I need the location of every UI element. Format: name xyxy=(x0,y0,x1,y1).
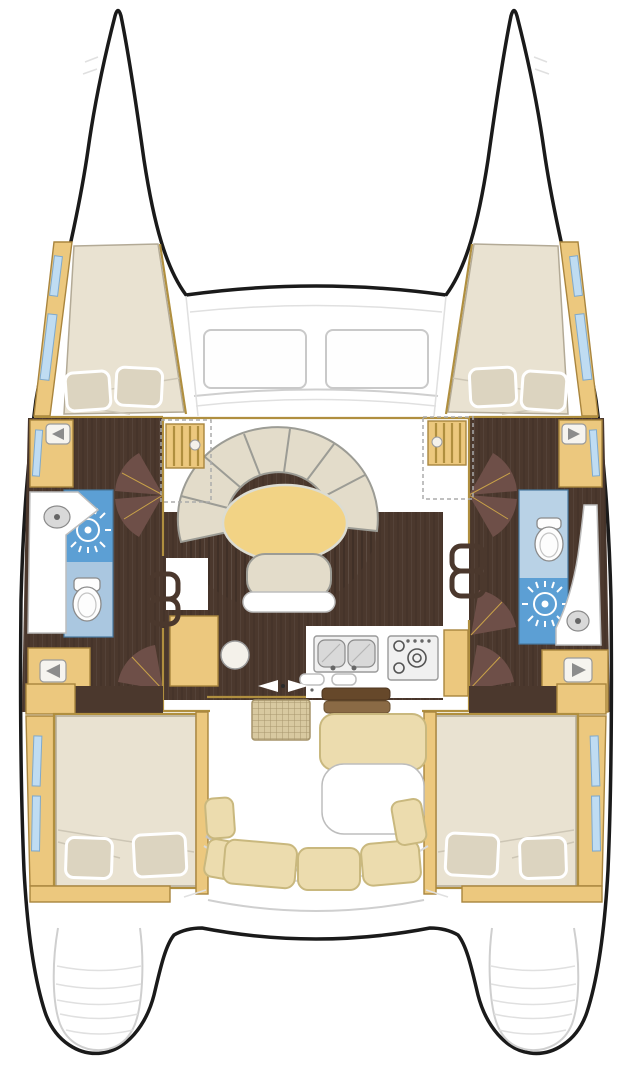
deck-hatch-starboard xyxy=(326,330,428,388)
aft-cabinet xyxy=(462,886,602,902)
port-hull-midship xyxy=(22,418,163,712)
pillow xyxy=(445,833,499,878)
entry-mat xyxy=(252,700,310,740)
starboard-hull-midship xyxy=(469,418,610,712)
bench-cushion xyxy=(222,839,298,889)
pillow xyxy=(115,367,163,407)
aft-cabinet xyxy=(30,886,170,902)
drawer-handle xyxy=(332,674,356,685)
deck-hatch-port xyxy=(204,330,306,388)
hull-window xyxy=(590,736,600,786)
galley-cabinet xyxy=(444,630,468,696)
bathroom-starboard xyxy=(519,490,601,645)
toilet-icon xyxy=(73,578,101,621)
hull-window xyxy=(32,796,41,851)
pillow xyxy=(65,371,112,412)
cockpit-step xyxy=(322,688,390,700)
salon-table xyxy=(223,485,347,561)
drawer-handle xyxy=(300,674,324,685)
pillow xyxy=(521,371,568,412)
aft-cabin-starboard xyxy=(424,684,606,902)
pillow xyxy=(65,837,112,879)
bulkhead xyxy=(75,686,163,714)
bench-cushion xyxy=(205,797,236,839)
toilet-icon xyxy=(535,518,563,561)
nav-stool xyxy=(221,641,249,669)
salon xyxy=(150,417,484,712)
catamaran-floor-plan xyxy=(0,0,632,1080)
floor-plan-canvas xyxy=(0,0,632,1080)
aft-cabin-port xyxy=(26,684,208,902)
chart-table xyxy=(170,616,218,686)
bow-deck-lines xyxy=(83,57,549,74)
pillow xyxy=(469,367,517,407)
bench-cushion xyxy=(390,798,427,847)
hull-window xyxy=(592,796,601,851)
bench-cushion xyxy=(298,848,360,890)
pillow xyxy=(133,833,187,878)
hull-window xyxy=(32,736,42,786)
bench-cushion xyxy=(360,840,421,887)
cockpit-bench-forward xyxy=(320,714,426,770)
pillow xyxy=(519,837,566,879)
bathroom-port xyxy=(28,490,113,637)
bulkhead xyxy=(469,686,557,714)
salon-ottoman xyxy=(243,554,335,612)
galley-sink xyxy=(314,636,378,672)
cockpit-step xyxy=(324,701,390,713)
galley-stove xyxy=(388,636,438,680)
